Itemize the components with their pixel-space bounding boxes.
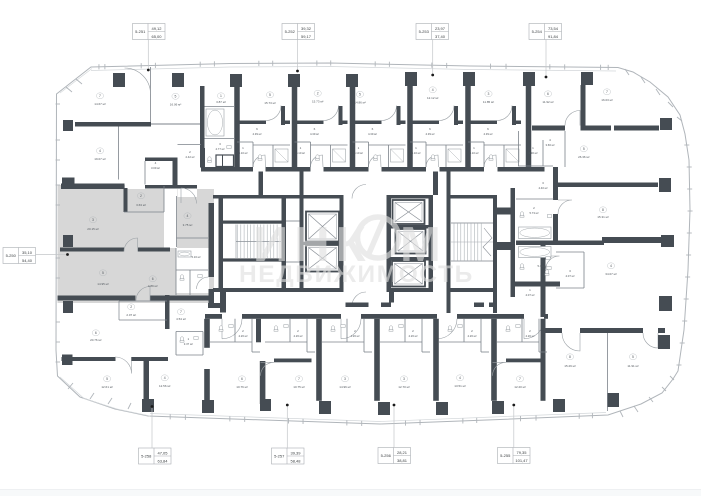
svg-text:2: 2 [529,329,531,333]
svg-text:12.12 м²: 12.12 м² [427,96,438,100]
svg-text:1: 1 [532,146,534,150]
svg-text:13.51 м²: 13.51 м² [454,384,465,388]
svg-text:4.26 м²: 4.26 м² [350,334,359,338]
svg-text:4.39 м²: 4.39 м² [368,132,377,136]
svg-text:101,47: 101,47 [515,458,528,463]
svg-text:63,84: 63,84 [157,458,168,463]
svg-text:16.03 м²: 16.03 м² [601,98,612,102]
svg-text:4: 4 [459,376,461,380]
svg-text:12.20 м²: 12.20 м² [514,385,525,389]
svg-text:5: 5 [269,93,271,97]
svg-text:5: 5 [106,377,108,381]
svg-text:6: 6 [314,127,316,131]
svg-text:23,97: 23,97 [435,26,446,31]
svg-text:4: 4 [549,138,551,142]
svg-text:3.87 м²: 3.87 м² [216,100,226,104]
svg-text:8: 8 [569,355,571,359]
svg-text:14.67 м²: 14.67 м² [94,102,105,106]
svg-text:4.89 м²: 4.89 м² [148,284,158,288]
svg-text:54,40: 54,40 [22,258,33,263]
svg-text:91,84: 91,84 [548,34,559,39]
svg-text:6: 6 [547,92,549,96]
svg-text:1: 1 [242,146,244,150]
svg-text:5-258: 5-258 [141,454,152,459]
svg-text:15.73 м²: 15.73 м² [264,101,275,105]
svg-text:7: 7 [298,377,300,381]
svg-text:5-250: 5-250 [6,253,17,258]
svg-text:11.85 м²: 11.85 м² [483,100,494,104]
svg-text:3: 3 [488,92,490,96]
svg-text:15.29 м²: 15.29 м² [564,364,575,368]
svg-text:39,32: 39,32 [301,26,312,31]
svg-text:2: 2 [317,92,319,96]
svg-text:3.63 м²: 3.63 м² [136,203,146,207]
svg-text:4.39 м²: 4.39 м² [425,132,434,136]
svg-text:4.39 м²: 4.39 м² [252,132,261,136]
svg-text:37,40: 37,40 [435,34,446,39]
svg-text:14.95 м²: 14.95 м² [97,282,108,286]
svg-text:4: 4 [610,264,612,268]
svg-text:1: 1 [187,337,189,341]
svg-text:10.76 м²: 10.76 м² [236,385,247,389]
svg-text:1: 1 [358,146,360,150]
svg-text:6: 6 [241,377,243,381]
svg-text:4.26 м²: 4.26 м² [293,334,302,338]
svg-text:3: 3 [92,218,94,222]
svg-text:4.10 м²: 4.10 м² [354,151,363,155]
svg-text:5: 5 [583,147,585,151]
svg-text:5: 5 [359,93,361,97]
svg-text:39,39: 39,39 [290,450,301,455]
svg-text:4.26 м²: 4.26 м² [408,334,417,338]
svg-text:2.42 м²: 2.42 м² [185,155,194,159]
svg-text:4.39 м²: 4.39 м² [483,132,492,136]
svg-text:5-257: 5-257 [274,454,285,459]
svg-text:34.07 м²: 34.07 м² [605,272,616,276]
svg-text:6: 6 [429,127,431,131]
svg-text:1: 1 [473,146,475,150]
svg-text:5: 5 [102,271,104,275]
svg-text:3: 3 [569,269,571,273]
svg-text:6: 6 [152,277,154,281]
svg-text:2: 2 [471,329,473,333]
svg-text:6: 6 [95,331,97,335]
svg-text:73,54: 73,54 [548,26,559,31]
svg-text:5-253: 5-253 [419,29,430,34]
svg-text:4.54 м²: 4.54 м² [176,317,186,321]
svg-text:НЕДВИЖИМОСТЬ: НЕДВИЖИМОСТЬ [239,261,474,288]
svg-text:2.07 м²: 2.07 м² [126,313,136,317]
svg-text:4.39 м²: 4.39 м² [310,132,319,136]
svg-text:12.70 м²: 12.70 м² [398,385,409,389]
svg-text:28,21: 28,21 [397,450,408,455]
svg-text:49,12: 49,12 [151,26,162,31]
svg-text:47,05: 47,05 [157,450,168,455]
svg-text:5-251: 5-251 [135,29,146,34]
svg-text:7: 7 [519,377,521,381]
svg-text:4.40 м²: 4.40 м² [538,186,547,190]
svg-text:2: 2 [130,305,132,309]
svg-text:3.37 м²: 3.37 м² [184,342,193,346]
svg-text:2: 2 [533,206,535,210]
svg-text:6: 6 [372,127,374,131]
svg-text:3.75 м²: 3.75 м² [183,223,193,227]
svg-text:1: 1 [300,146,302,150]
svg-text:2: 2 [412,329,414,333]
svg-text:14.96 м²: 14.96 м² [339,385,350,389]
svg-text:4.26 м²: 4.26 м² [238,334,247,338]
svg-text:5-252: 5-252 [285,29,296,34]
svg-text:3: 3 [344,377,346,381]
svg-text:5.16 м²: 5.16 м² [191,255,200,259]
svg-text:7: 7 [606,90,608,94]
svg-text:7: 7 [180,310,182,314]
svg-text:11.92 м²: 11.92 м² [542,100,553,104]
svg-text:10.75 м²: 10.75 м² [293,385,304,389]
svg-text:1: 1 [529,288,531,292]
svg-text:4.26 м²: 4.26 м² [525,334,534,338]
svg-text:14.86 м²: 14.86 м² [354,101,365,105]
svg-text:16.06 м²: 16.06 м² [170,103,181,107]
svg-text:2: 2 [297,329,299,333]
svg-text:4.07 м²: 4.07 м² [525,293,534,297]
svg-text:12.56 м²: 12.56 м² [159,384,170,388]
svg-text:2: 2 [189,150,191,154]
svg-text:19.07 м²: 19.07 м² [94,157,105,161]
svg-text:5.46 м²: 5.46 м² [537,264,546,268]
svg-text:59,17: 59,17 [301,34,312,39]
svg-text:20.76 м²: 20.76 м² [90,338,101,342]
svg-text:4.10 м²: 4.10 м² [238,151,247,155]
svg-text:4.10 м²: 4.10 м² [469,151,478,155]
svg-text:5: 5 [175,95,177,99]
svg-text:5-256: 5-256 [381,453,392,458]
svg-text:7: 7 [99,94,101,98]
svg-text:15.31 м²: 15.31 м² [597,215,608,219]
svg-text:6: 6 [487,127,489,131]
svg-text:4: 4 [187,214,189,218]
svg-text:12.61 м²: 12.61 м² [101,385,112,389]
svg-text:3: 3 [219,142,221,146]
svg-text:3: 3 [542,181,544,185]
svg-text:3.09 м²: 3.09 м² [151,166,160,170]
svg-text:2: 2 [242,329,244,333]
svg-text:1: 1 [415,146,417,150]
svg-text:4.26 м²: 4.26 м² [467,334,476,338]
svg-text:4: 4 [99,149,101,153]
svg-text:4: 4 [164,376,166,380]
svg-text:5-255: 5-255 [500,453,511,458]
svg-text:4.10 м²: 4.10 м² [411,151,420,155]
svg-text:6: 6 [256,127,258,131]
svg-text:4.07 м²: 4.07 м² [565,274,574,278]
svg-text:3: 3 [403,377,405,381]
svg-text:4: 4 [432,88,434,92]
svg-text:5-254: 5-254 [532,29,543,34]
svg-text:4: 4 [155,161,157,165]
svg-text:8: 8 [602,208,604,212]
svg-text:4.10 м²: 4.10 м² [296,151,305,155]
svg-text:11.91 м²: 11.91 м² [627,364,638,368]
svg-text:2: 2 [140,194,142,198]
svg-text:20.15 м²: 20.15 м² [87,227,98,231]
svg-text:5: 5 [632,355,634,359]
svg-text:1: 1 [220,94,222,98]
svg-text:4.90 м²: 4.90 м² [528,151,537,155]
svg-text:65,00: 65,00 [151,34,162,39]
svg-text:35,10: 35,10 [22,250,33,255]
svg-text:15.73 м²: 15.73 м² [312,100,323,104]
svg-text:26.36 м²: 26.36 м² [578,155,589,159]
svg-text:3.66 м²: 3.66 м² [545,143,554,147]
svg-text:38,81: 38,81 [397,458,408,463]
svg-text:79,35: 79,35 [516,450,527,455]
svg-text:4.77 м²: 4.77 м² [215,147,224,151]
svg-text:58,48: 58,48 [290,458,301,463]
svg-text:5.73 м²: 5.73 м² [529,211,538,215]
